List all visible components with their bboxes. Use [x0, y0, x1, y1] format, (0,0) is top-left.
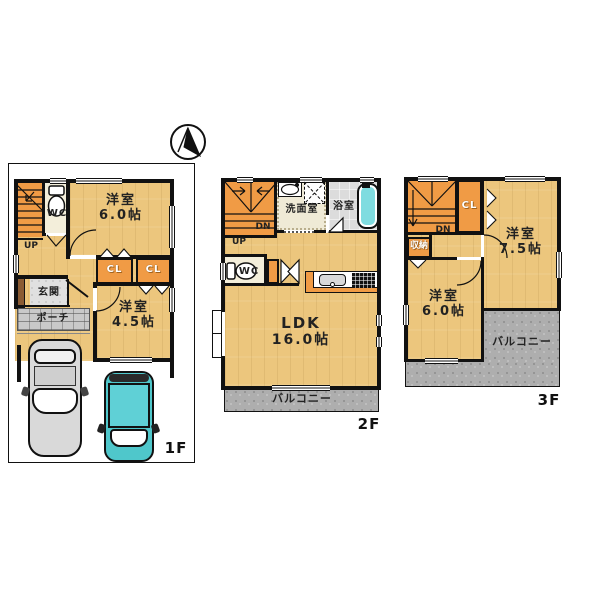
bay-window: [212, 310, 222, 358]
label-wc-1f: WC: [46, 208, 68, 220]
room-size: 7.5帖: [486, 243, 556, 258]
label-cl-2: CL: [137, 264, 170, 276]
wall: [14, 275, 68, 279]
label-wc-2f: WC: [236, 266, 262, 278]
door-opening: [46, 233, 66, 236]
window: [360, 177, 374, 183]
balcony-outline: [559, 311, 560, 387]
label-cl-3f: CL: [458, 200, 481, 212]
wall: [377, 178, 381, 390]
wall: [14, 179, 18, 309]
floor-tag-1f: 1F: [163, 440, 189, 457]
door-opening: [70, 255, 96, 259]
parking-fence: [17, 345, 21, 382]
wall: [404, 177, 408, 362]
label-senmen: 洗面室: [277, 204, 327, 216]
washroom-sink: [278, 182, 302, 197]
sliding-door-balcony-2f: [272, 385, 330, 391]
label-bath: 浴室: [328, 201, 360, 213]
room-size: 16.0帖: [266, 332, 336, 348]
window: [556, 252, 562, 278]
window: [169, 288, 175, 312]
door-opening: [326, 215, 329, 233]
porch-step-line: [17, 333, 90, 334]
label-balcony-2f: バルコニー: [262, 393, 342, 406]
label-cl-1: CL: [97, 264, 132, 276]
room-name: 洋室: [99, 301, 169, 316]
wall: [93, 282, 174, 286]
floor-tag-3f: 3F: [536, 392, 562, 409]
label-up-1f: UP: [19, 241, 43, 251]
window: [169, 206, 175, 248]
label-up-2f: UP: [227, 237, 251, 247]
window: [110, 357, 152, 363]
window: [237, 177, 253, 183]
kitchen-faucet: [330, 282, 335, 287]
label-dn-3f: DN: [432, 225, 454, 235]
label-porch: ポーチ: [27, 313, 79, 325]
label-genkan: 玄関: [31, 287, 67, 299]
room-name: 洋室: [486, 228, 556, 243]
room-size: 6.0帖: [409, 305, 479, 320]
car-gray-windshield: [32, 388, 78, 414]
wall: [557, 177, 561, 311]
car-teal-rear-band: [109, 374, 149, 382]
room-name: 洋室: [409, 290, 479, 305]
wall: [221, 283, 299, 286]
room-label-bedroom45-1f: 洋室 4.5帖: [99, 301, 169, 331]
wall: [221, 254, 267, 257]
window: [376, 315, 382, 326]
balcony-3f-bottom: [406, 362, 560, 387]
window: [505, 176, 545, 182]
room-name: LDK: [266, 315, 336, 332]
window: [50, 178, 66, 184]
room-size: 6.0帖: [86, 209, 156, 224]
bathtub: [357, 183, 379, 229]
room-label-ldk: LDK 16.0帖: [266, 315, 336, 348]
balcony-outline: [405, 362, 406, 387]
door-opening: [93, 288, 97, 311]
wall: [14, 305, 70, 307]
bay-window-mullion: [212, 333, 222, 334]
room-label-bedroom6-1f: 洋室 6.0帖: [86, 194, 156, 224]
wall: [264, 254, 267, 286]
washing-machine: [304, 182, 325, 204]
balcony-outline: [405, 386, 560, 387]
window: [376, 337, 382, 347]
car-teal-roof: [108, 383, 150, 428]
car-teal-windshield: [110, 429, 148, 447]
wall: [481, 308, 561, 311]
floor-plan-canvas: 洋室 6.0帖 WC UP CL CL 玄関 ポーチ 洋室 4.5帖 1F 洗面…: [0, 0, 600, 600]
wall: [67, 279, 69, 307]
wall: [42, 179, 45, 236]
room-size: 4.5帖: [99, 316, 169, 331]
stove: [352, 273, 375, 288]
window: [418, 176, 448, 182]
room-name: 洋室: [86, 194, 156, 209]
floor-tag-2f: 2F: [356, 416, 382, 433]
label-dn-2f: DN: [252, 222, 274, 232]
window: [300, 177, 322, 183]
door-opening: [481, 235, 484, 257]
door-opening: [457, 257, 481, 260]
bathtub-faucet: [362, 183, 370, 188]
car-gray-roof: [34, 366, 76, 386]
label-balcony-3f: バルコニー: [482, 336, 562, 349]
label-storage: 収納: [406, 241, 432, 251]
car-gray-rear-window: [34, 349, 76, 364]
door-panel-2f: [267, 259, 279, 284]
window: [13, 255, 19, 273]
compass-icon: [170, 124, 206, 160]
door-opening: [284, 230, 314, 233]
stairs-1f: [15, 181, 43, 237]
room-label-bedroom6-3f: 洋室 6.0帖: [409, 290, 479, 320]
window: [220, 263, 226, 280]
window: [76, 178, 122, 184]
sliding-door-balcony-3f: [425, 358, 458, 364]
room-label-bedroom75-3f: 洋室 7.5帖: [486, 228, 556, 258]
wall: [15, 238, 43, 240]
